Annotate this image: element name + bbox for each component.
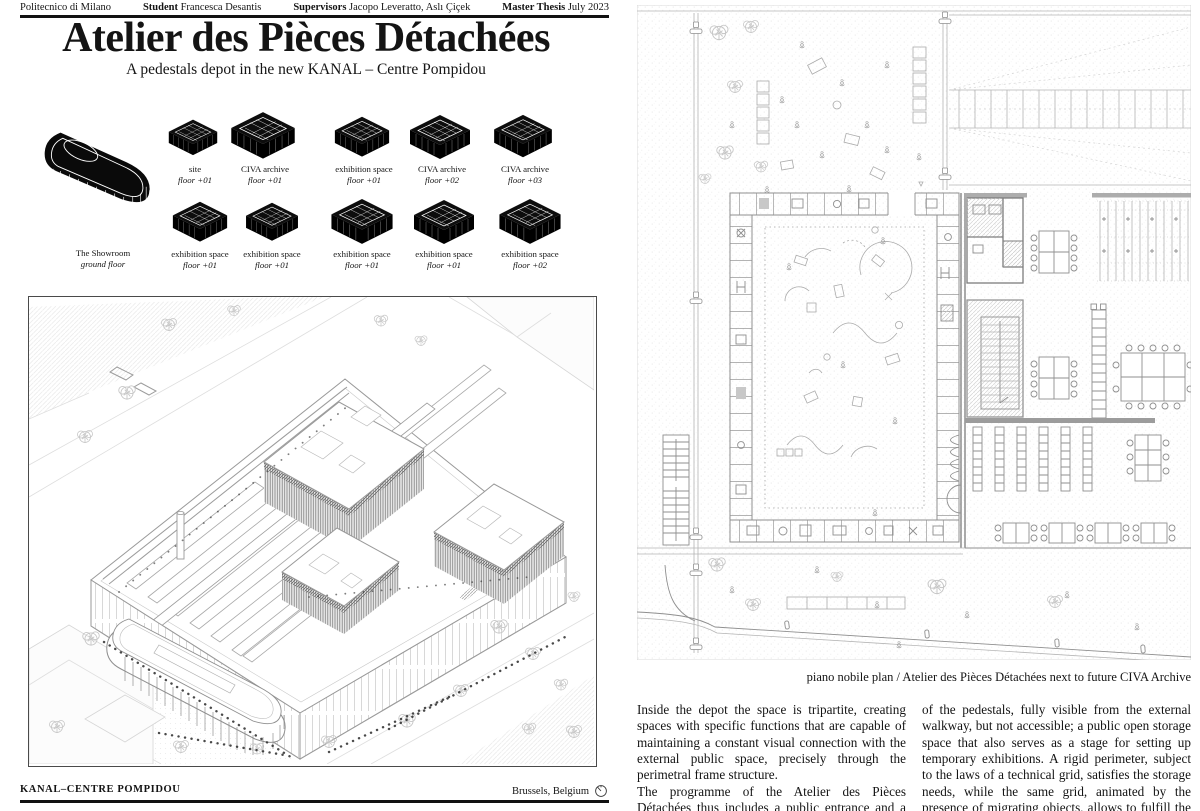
diagram-label: CIVA archivefloor +03 — [463, 164, 587, 187]
diagram-name: exhibition space — [243, 249, 300, 259]
footer-rule — [20, 800, 609, 803]
diagram-icon-civa3 — [492, 113, 554, 163]
page-title: Atelier des Pièces Détachées — [0, 17, 612, 59]
diagram-name: site — [189, 164, 201, 174]
floor-plan-drawing — [637, 5, 1191, 660]
thesis-date: July 2023 — [568, 2, 609, 13]
diagram-icon-exhib3 — [244, 201, 300, 246]
diagram-icon-exhib2 — [171, 200, 229, 247]
diagram-icon-civa2 — [408, 113, 472, 165]
axonometric-drawing-frame — [28, 296, 597, 767]
diagram-name: CIVA archive — [241, 164, 289, 174]
diagram-icon-site — [167, 118, 219, 160]
diagram-icon-exhib5 — [412, 198, 476, 250]
plan-caption: piano nobile plan / Atelier des Pièces D… — [631, 670, 1191, 685]
header-student: Student Francesca Desantis — [143, 2, 261, 13]
diagram-name: The Showroom — [76, 248, 131, 258]
diagram-label: exhibition spacefloor +02 — [468, 249, 592, 272]
diagram-icon-exhib1 — [333, 115, 391, 162]
body-paragraph: Inside the depot the space is tripartite… — [637, 702, 906, 784]
header-thesis: Master Thesis July 2023 — [502, 2, 609, 13]
diagram-icon-civa1 — [229, 110, 297, 165]
header-supervisors: Supervisors Jacopo Leveratto, Aslı Çiçek — [293, 2, 470, 13]
supervisors-label: Supervisors — [293, 2, 346, 13]
diagram-icon-exhib6 — [497, 197, 563, 250]
body-column-2: of the pedestals, fully visible from the… — [922, 702, 1191, 811]
diagram-name: exhibition space — [501, 249, 558, 259]
floor-plan-frame — [637, 5, 1191, 660]
header-row: Politecnico di Milano Student Francesca … — [20, 2, 609, 13]
diagram-floor: floor +02 — [468, 260, 592, 271]
diagram-floor: floor +03 — [463, 175, 587, 186]
thesis-label: Master Thesis — [502, 2, 565, 13]
header-institution: Politecnico di Milano — [20, 2, 111, 13]
page-subtitle: A pedestals depot in the new KANAL – Cen… — [0, 61, 612, 79]
footer-location: Brussels, Belgium — [512, 786, 589, 797]
body-paragraph: The programme of the Atelier des Pièces … — [637, 784, 906, 811]
diagram-name: CIVA archive — [418, 164, 466, 174]
student-label: Student — [143, 2, 178, 13]
footer-project: KANAL–CENTRE POMPIDOU — [20, 784, 180, 795]
student-name: Francesca Desantis — [181, 2, 262, 13]
thesis-board: Politecnico di Milano Student Francesca … — [0, 0, 1200, 811]
footer-location-group: Brussels, Belgium — [512, 784, 608, 798]
diagram-name: exhibition space — [415, 249, 472, 259]
diagram-name: CIVA archive — [501, 164, 549, 174]
axonometric-drawing — [29, 297, 594, 764]
body-column-1: Inside the depot the space is tripartite… — [637, 702, 906, 811]
diagram-icon-exhib4 — [329, 197, 395, 250]
body-paragraph: of the pedestals, fully visible from the… — [922, 702, 1191, 811]
supervisors-names: Jacopo Leveratto, Aslı Çiçek — [349, 2, 470, 13]
north-arrow-icon — [594, 784, 608, 798]
